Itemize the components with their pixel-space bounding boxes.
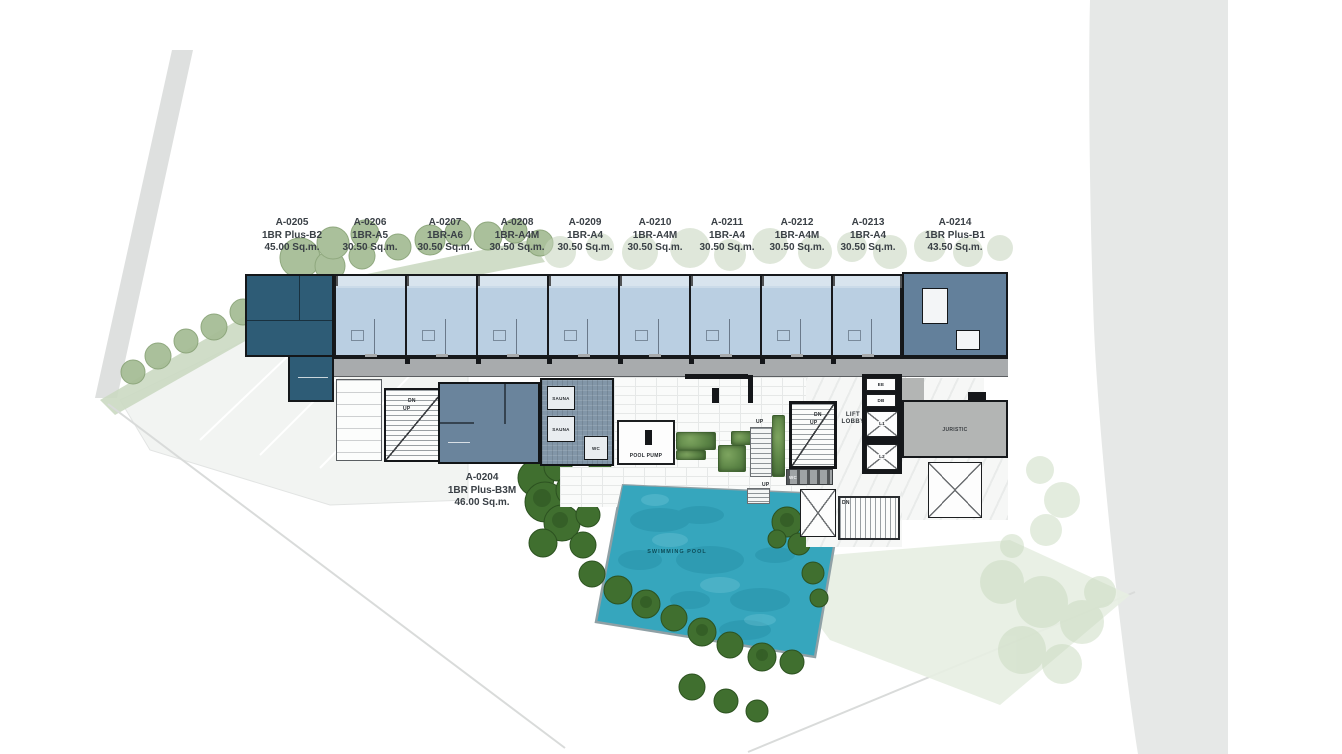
unit-label-A-0206: A-0206 1BR-A5 30.50 Sq.m. xyxy=(328,217,412,255)
unit-type: 1BR Plus-B3M xyxy=(440,485,524,498)
db-label: DB xyxy=(867,398,895,404)
planter xyxy=(676,450,706,460)
juristic-ante xyxy=(902,378,924,402)
lift1-label: L1 xyxy=(878,421,886,426)
wc-room: WC xyxy=(584,436,608,460)
service-room xyxy=(336,379,382,461)
corridor xyxy=(334,357,1008,377)
unit-id: A-0205 xyxy=(250,217,334,230)
lift-2[interactable]: L2 xyxy=(866,444,898,470)
juristic-room[interactable]: JURISTIC xyxy=(902,400,1008,458)
unit-area: 46.00 Sq.m. xyxy=(440,497,524,510)
deck-stair-lower[interactable] xyxy=(747,488,770,504)
unit-A-0209-shape[interactable] xyxy=(549,276,620,355)
unit-A-0212-shape[interactable] xyxy=(762,276,833,355)
interior-wall xyxy=(298,377,328,378)
wc-pool-label: WC xyxy=(789,475,797,481)
lift-1[interactable]: L1 xyxy=(866,411,898,437)
deck-up2-label: UP xyxy=(762,482,770,488)
unit-A-0210-shape[interactable] xyxy=(620,276,691,355)
planter xyxy=(772,415,785,477)
interior-wall xyxy=(299,276,300,320)
unit-A-0206-shape[interactable] xyxy=(336,276,407,355)
lift2-label: L2 xyxy=(878,454,886,459)
sauna-room-lower: SAUNA xyxy=(547,416,575,442)
swimming-pool-label: SWIMMING POOL xyxy=(632,549,722,555)
unit-id: A-0204 xyxy=(440,472,524,485)
stair-left[interactable]: DN UP xyxy=(384,388,446,462)
unit-area: 43.50 Sq.m. xyxy=(913,242,997,255)
sauna-lower-label: SAUNA xyxy=(548,427,574,433)
unit-A-0205-wing[interactable] xyxy=(288,355,334,402)
deck-up1-label: UP xyxy=(756,419,764,425)
column xyxy=(476,358,481,364)
planter xyxy=(718,445,746,472)
column xyxy=(760,358,765,364)
interior-wall xyxy=(440,422,474,424)
sauna-room-upper: SAUNA xyxy=(547,386,575,410)
unit-A-0204-shape[interactable] xyxy=(438,382,540,464)
column xyxy=(689,358,694,364)
unit-label-A-0214: A-0214 1BR Plus-B1 43.50 Sq.m. xyxy=(913,217,997,255)
unit-A-0214-shape[interactable] xyxy=(902,272,1008,357)
unit-type: 1BR-A5 xyxy=(328,230,412,243)
unit-A-0208-shape[interactable] xyxy=(478,276,549,355)
unit-A-0205-shape[interactable] xyxy=(245,274,334,357)
column xyxy=(405,358,410,364)
stair-diagonal xyxy=(792,404,834,466)
planter xyxy=(676,432,716,450)
wall xyxy=(748,375,753,403)
column xyxy=(831,358,836,364)
ee-shaft: EE xyxy=(866,378,896,391)
stair-lower-dn-label: DN xyxy=(842,500,850,506)
column xyxy=(618,358,623,364)
pool-pump-label: POOL PUMP xyxy=(619,453,673,459)
bathroom xyxy=(956,330,980,350)
column xyxy=(645,430,652,445)
sauna-block: SAUNA SAUNA WC xyxy=(540,378,614,466)
column xyxy=(547,358,552,364)
juristic-label: JURISTIC xyxy=(904,427,1006,433)
interior-wall xyxy=(247,320,332,321)
stair-right[interactable]: DN UP xyxy=(789,401,837,469)
unit-area: 30.50 Sq.m. xyxy=(826,242,910,255)
unit-id: A-0213 xyxy=(826,217,910,230)
unit-id: A-0214 xyxy=(913,217,997,230)
unit-label-A-0205: A-0205 1BR Plus-B2 45.00 Sq.m. xyxy=(250,217,334,255)
void-box xyxy=(800,489,836,537)
pool-wc-strip: WC xyxy=(786,469,833,485)
stair-left-up-label: UP xyxy=(403,406,411,412)
deck-stair-upper[interactable] xyxy=(750,427,772,477)
db-shaft: DB xyxy=(866,394,896,407)
unit-label-A-0204: A-0204 1BR Plus-B3M 46.00 Sq.m. xyxy=(440,472,524,510)
wc-sauna-label: WC xyxy=(585,446,607,452)
interior-wall xyxy=(504,384,506,424)
unit-type: 1BR Plus-B1 xyxy=(913,230,997,243)
closet xyxy=(922,288,948,324)
stair-right-up-label: UP xyxy=(810,420,818,426)
floor-plan-scene: DN UP SAUNA SAUNA WC POOL PUMP UP U xyxy=(0,0,1342,754)
road-right xyxy=(1089,0,1228,754)
unit-area: 45.00 Sq.m. xyxy=(250,242,334,255)
ee-label: EE xyxy=(867,382,895,388)
stair-left-dn-label: DN xyxy=(408,398,416,404)
unit-type: 1BR-A4 xyxy=(826,230,910,243)
sauna-upper-label: SAUNA xyxy=(548,396,574,402)
interior-wall xyxy=(448,442,470,443)
column xyxy=(712,388,719,403)
unit-A-0211-shape[interactable] xyxy=(691,276,762,355)
stair-right-dn-label: DN xyxy=(814,412,822,418)
void-shaft xyxy=(928,462,982,518)
unit-A-0213-shape[interactable] xyxy=(833,276,904,355)
unit-label-A-0213: A-0213 1BR-A4 30.50 Sq.m. xyxy=(826,217,910,255)
unit-id: A-0206 xyxy=(328,217,412,230)
wall xyxy=(685,374,748,379)
pool-pump-room: POOL PUMP xyxy=(617,420,675,465)
unit-type: 1BR Plus-B2 xyxy=(250,230,334,243)
unit-area: 30.50 Sq.m. xyxy=(328,242,412,255)
units-strip xyxy=(334,274,902,357)
unit-A-0207-shape[interactable] xyxy=(407,276,478,355)
